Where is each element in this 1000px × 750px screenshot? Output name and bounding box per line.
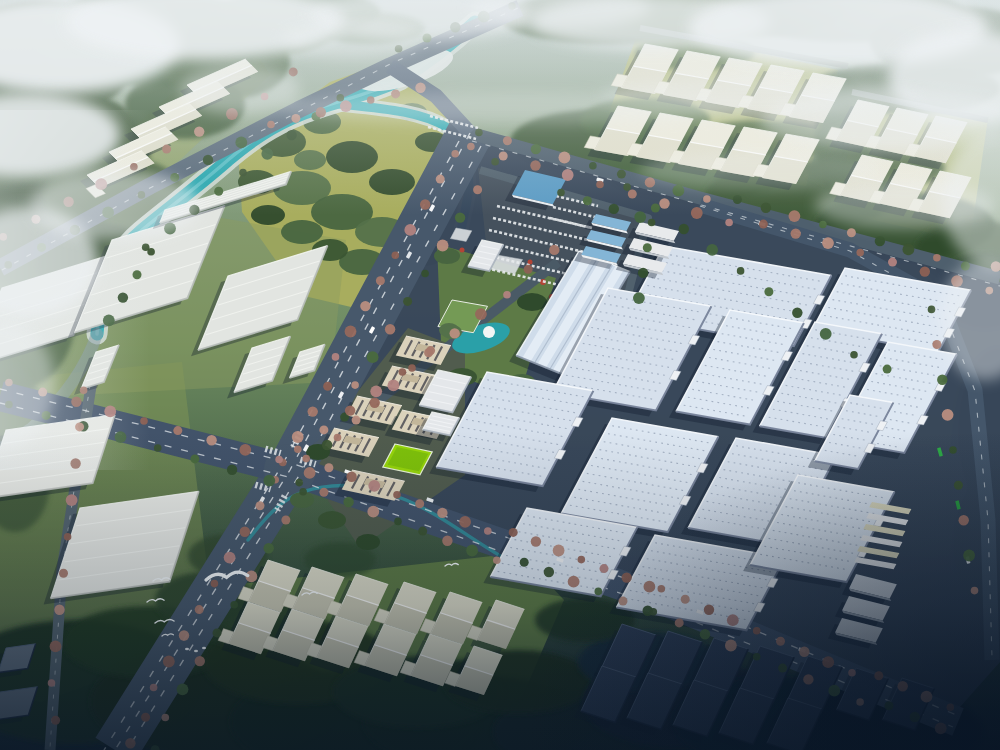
street-tree [928,306,936,314]
street-tree [403,297,412,306]
street-tree [888,258,897,267]
street-tree [937,375,947,385]
cloud [30,170,200,240]
street-tree [392,252,400,260]
street-tree [932,340,941,349]
street-tree [883,365,892,374]
street-tree [933,254,941,262]
street-tree [345,326,357,338]
street-tree [370,385,382,397]
street-tree [942,409,954,421]
street-tree [503,291,511,299]
street-tree [437,240,449,252]
street-tree [351,381,359,389]
cloud [180,66,300,114]
pond-sculpture [483,326,495,338]
street-tree [920,266,930,276]
corner-vignette [520,430,1000,750]
aerial-site-render [0,0,1000,750]
street-tree [421,270,429,278]
cloud [600,77,920,113]
street-tree [408,364,416,372]
garden-pavilion [460,248,465,253]
street-tree [475,308,487,320]
street-tree [332,353,340,361]
cloud [815,181,995,229]
street-tree [426,346,435,355]
street-tree [376,276,385,285]
street-tree [404,224,416,236]
street-tree [820,328,832,340]
street-tree [792,308,802,318]
street-tree [633,292,645,304]
cloud [280,22,420,58]
street-tree [638,268,648,278]
street-tree [679,224,689,234]
street-tree [764,287,773,296]
street-tree [323,382,332,391]
street-tree [643,243,652,252]
street-tree [308,406,318,416]
street-tree [352,416,361,425]
street-tree [360,301,370,311]
street-tree [737,267,745,275]
street-tree [648,219,656,227]
street-tree [549,245,559,255]
street-tree [524,265,533,274]
street-tree [367,351,379,363]
aerial-render-figure [0,0,1000,750]
street-tree [850,351,858,359]
street-tree [370,398,380,408]
cloud [640,150,880,190]
street-tree [399,368,407,376]
street-tree [388,380,400,392]
street-tree [345,405,355,415]
street-tree [385,324,395,334]
street-tree [450,328,460,338]
park-tree [281,220,323,244]
garden-tree [434,248,460,264]
